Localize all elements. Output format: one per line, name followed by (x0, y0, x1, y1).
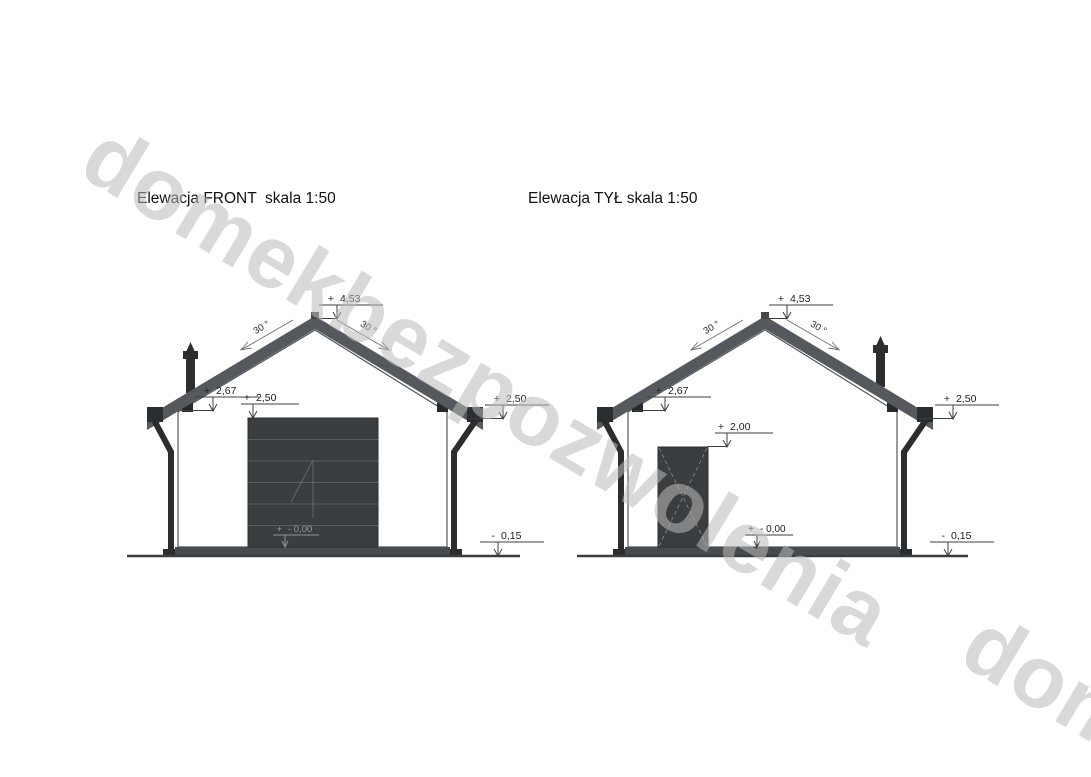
front-elevation-drawing: 30 ° 30 ° + 4,53 + 2,67 + (105, 270, 555, 600)
ground-level-value: 0,15 (501, 530, 522, 542)
ground-level-value: 0,15 (951, 530, 972, 542)
ridge-level-sign: + (328, 293, 334, 305)
opening-level-value: 2,50 (256, 392, 277, 404)
plinth (625, 547, 900, 556)
floor-level-sign: + (748, 524, 754, 535)
opening-level-sign: + (718, 421, 724, 433)
gutter-level-value: 2,50 (506, 393, 527, 405)
vent-chimney (873, 336, 888, 387)
plinth (175, 547, 450, 556)
front-elevation-title: Elewacja FRONT skala 1:50 (137, 190, 336, 208)
opening-level-value: 2,00 (730, 421, 751, 433)
gutter-level-sign: + (494, 393, 500, 405)
ridge-cap (761, 312, 769, 319)
ground-level-sign: - (492, 530, 496, 542)
rear-elevation-title: Elewacja TYŁ skala 1:50 (528, 190, 697, 208)
level-marker-ground: - 0,15 (930, 530, 994, 556)
ridge-level-sign: + (778, 293, 784, 305)
rear-elevation-drawing: 30 ° 30 ° + 4,53 + 2,67 + (555, 270, 1005, 600)
floor-level-value: - 0,00 (288, 524, 312, 535)
left-downspout (604, 420, 621, 550)
gutter-level-value: 2,50 (956, 393, 977, 405)
floor-level-value: - 0,00 (760, 524, 786, 535)
vent-chimney (183, 342, 198, 393)
eave-level-sign: + (204, 385, 210, 397)
level-marker-ridge: + 4,53 (315, 293, 383, 319)
level-marker-ground: - 0,15 (480, 530, 544, 556)
eave-level-sign: + (656, 385, 662, 397)
eave-level-value: 2,67 (216, 385, 237, 397)
ridge-level-value: 4,53 (340, 293, 361, 305)
ridge-level-value: 4,53 (790, 293, 811, 305)
left-downspout (154, 420, 171, 550)
ground-level-sign: - (942, 530, 946, 542)
watermark-fragment: dom (945, 592, 1091, 777)
level-marker-ridge: + 4,53 (765, 293, 833, 319)
entry-door (658, 447, 708, 547)
floor-level-sign: + (276, 524, 282, 535)
drawing-sheet: Elewacja FRONT skala 1:50 Elewacja TYŁ s… (0, 0, 1091, 772)
right-downspout (454, 420, 476, 550)
eave-level-value: 2,67 (668, 385, 689, 397)
ridge-cap (311, 312, 319, 319)
opening-level-sign: + (244, 392, 250, 404)
right-downspout (904, 420, 926, 550)
gutter-level-sign: + (944, 393, 950, 405)
garage-door (248, 418, 378, 547)
